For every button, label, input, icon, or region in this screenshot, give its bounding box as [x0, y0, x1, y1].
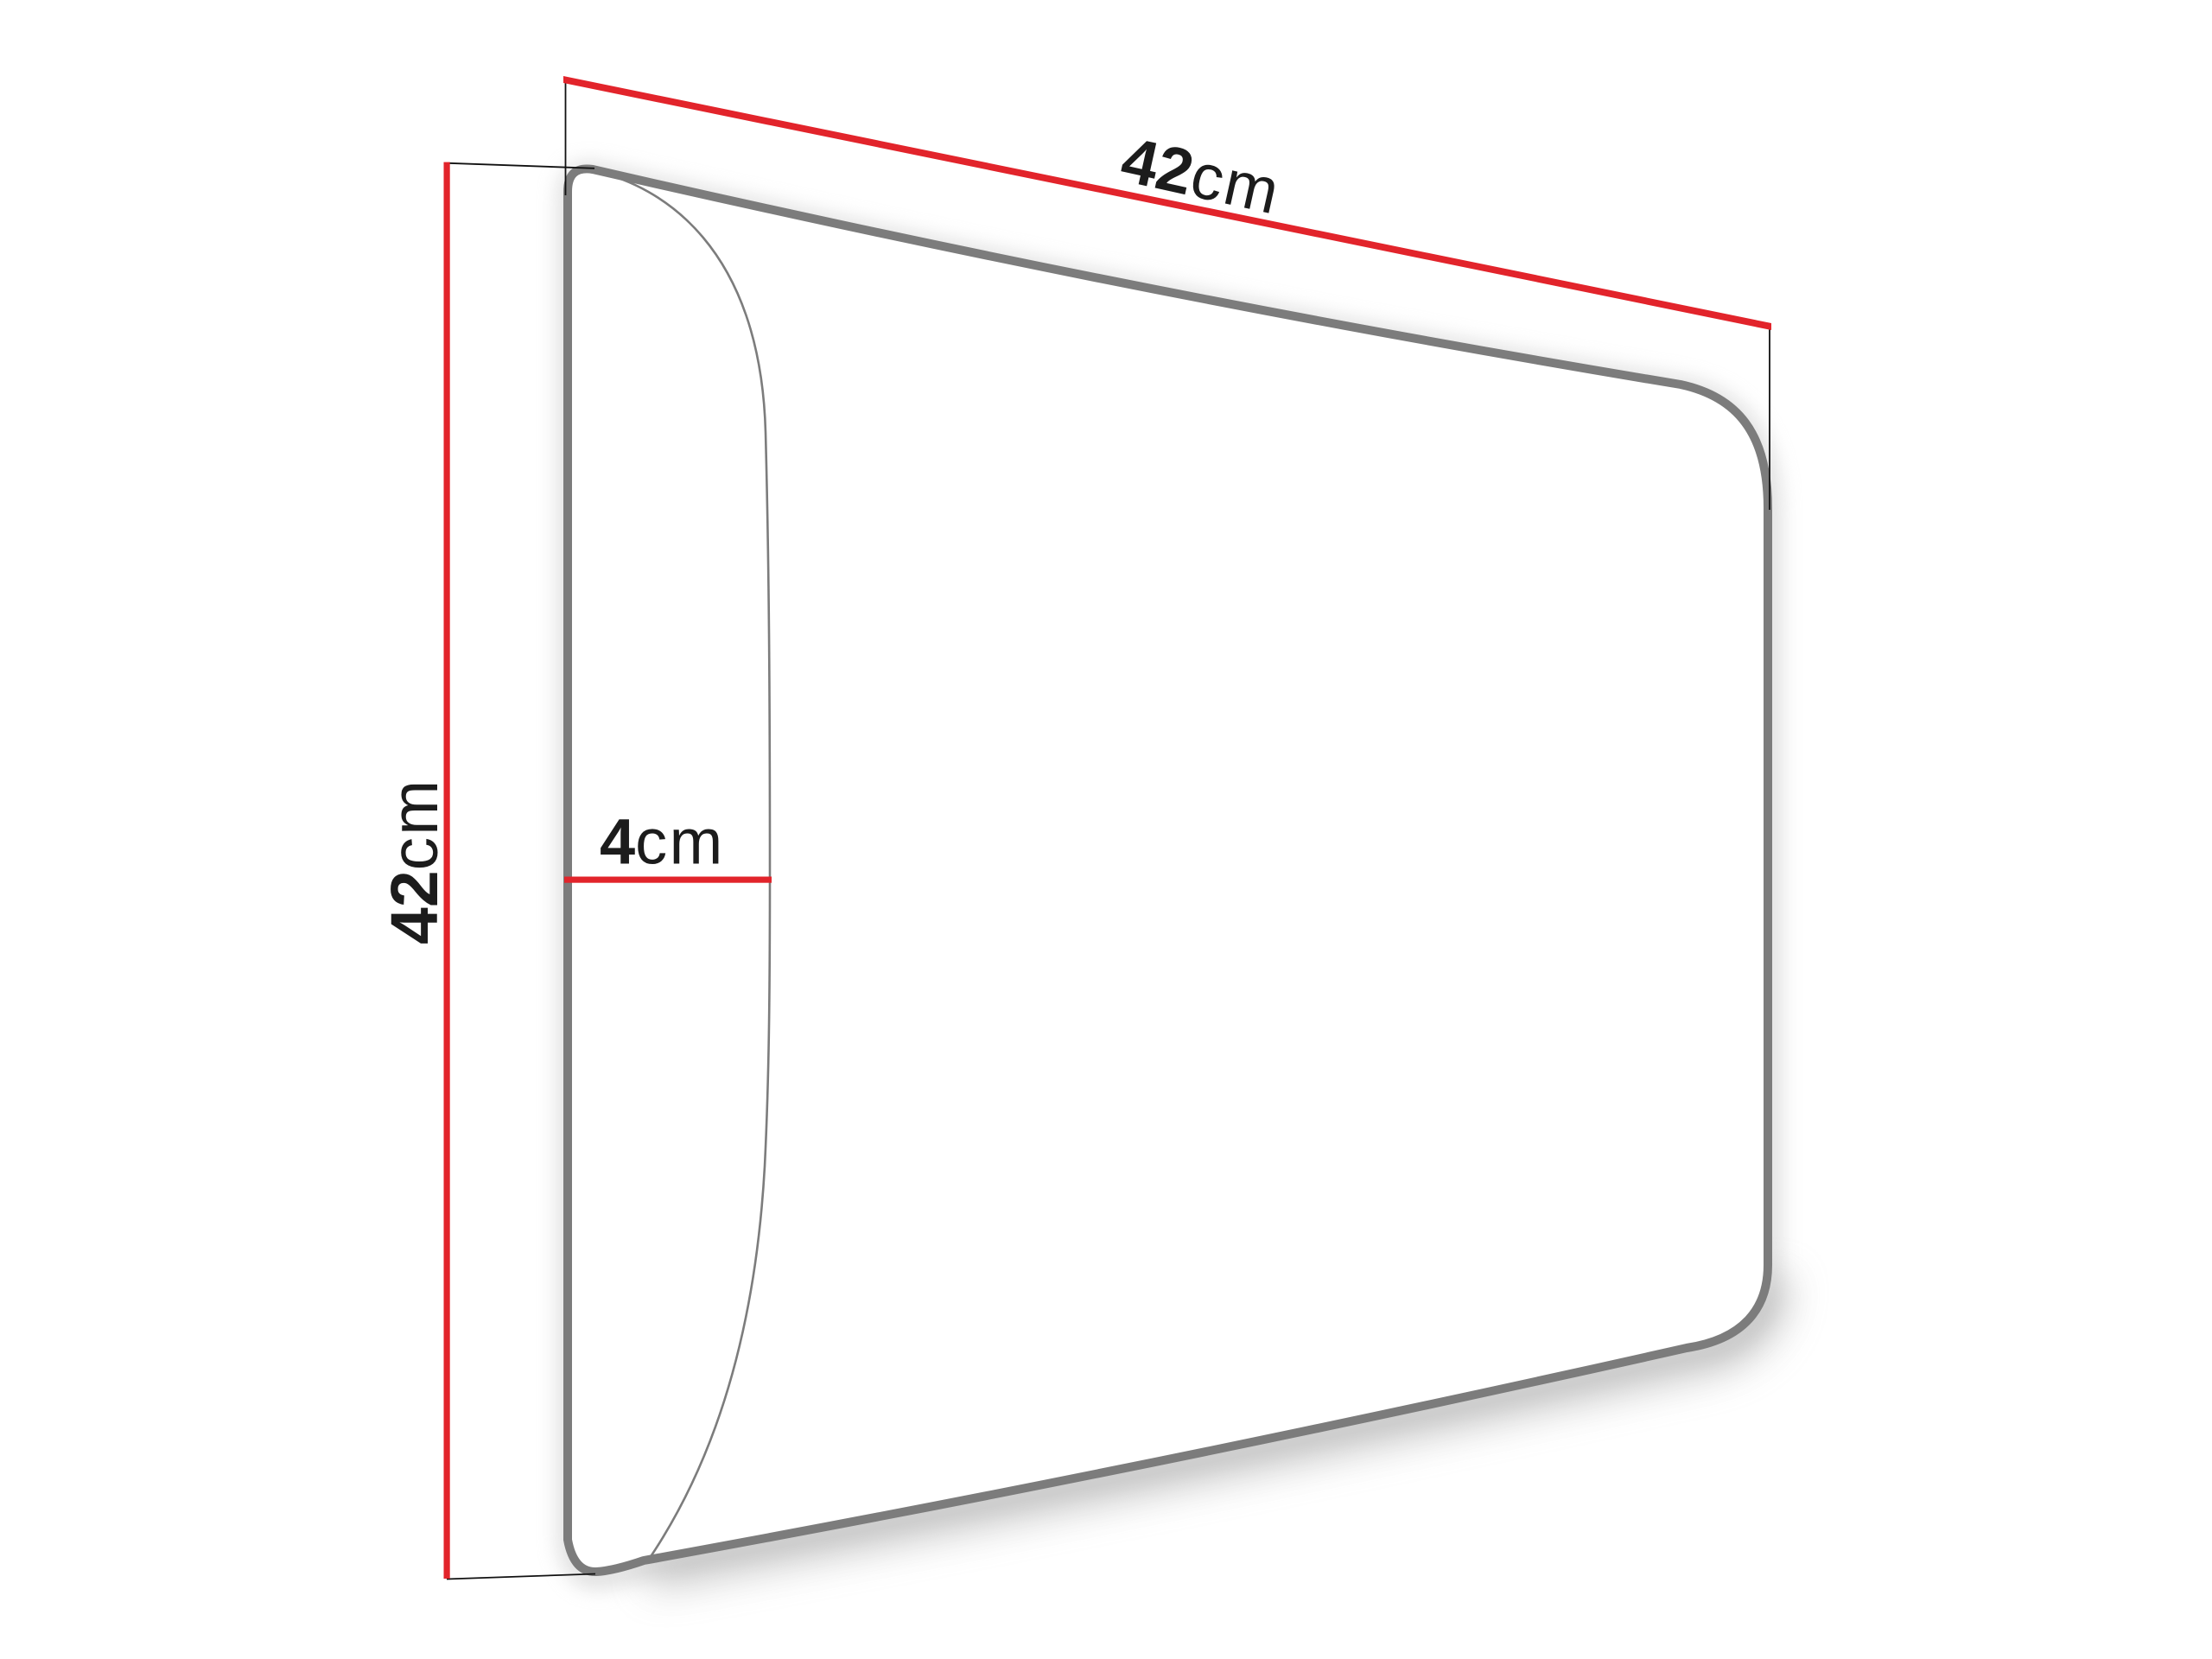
svg-text:4cm: 4cm: [600, 806, 725, 878]
svg-text:42cm: 42cm: [378, 779, 452, 944]
